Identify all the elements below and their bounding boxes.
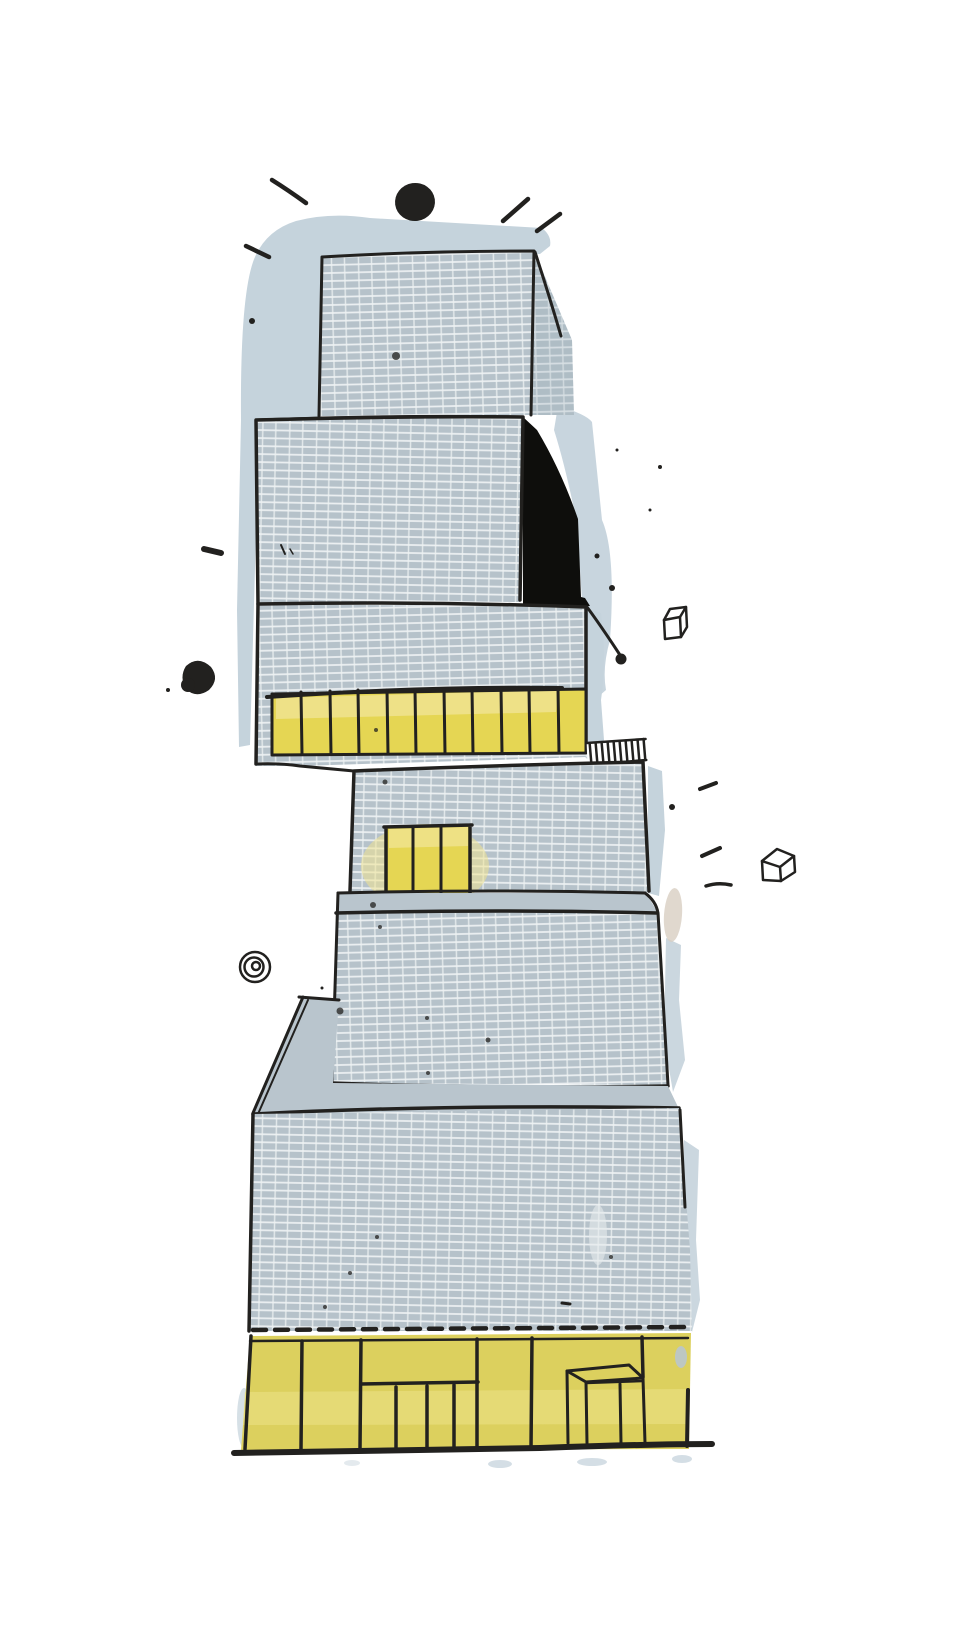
facade-eraser-smudge xyxy=(589,1205,607,1265)
box3-right-halo xyxy=(585,608,604,763)
3d-box-left-edge xyxy=(567,1371,568,1443)
door-lintel xyxy=(361,1382,478,1384)
ground-smudge-3 xyxy=(672,1455,692,1463)
box6-front-facade xyxy=(249,1108,692,1331)
rooftop-box-light-wash xyxy=(389,827,468,848)
small-tick xyxy=(562,1303,570,1304)
box5-front-top-edge xyxy=(336,911,657,913)
box2-front-facade xyxy=(256,417,523,604)
stacked-box-2 xyxy=(256,416,590,606)
left-dash xyxy=(204,549,221,553)
sketch-line-end-blob xyxy=(616,654,627,665)
stacked-box-1 xyxy=(319,251,574,416)
stacked-box-4 xyxy=(350,762,649,908)
stacked-box-5 xyxy=(332,891,668,1087)
box1-front-facade xyxy=(319,251,534,416)
storefront-right-edge xyxy=(687,1390,688,1446)
ink-blot-bump xyxy=(181,678,195,692)
building-sketch xyxy=(0,0,980,1634)
ground-smudge-2 xyxy=(577,1458,607,1466)
illustration-canvas xyxy=(0,0,980,1634)
ground-smudge-1 xyxy=(488,1460,512,1468)
3d-box-inner-edge xyxy=(620,1384,621,1443)
3d-box-front-left-edge xyxy=(586,1382,587,1443)
yellow-window-band xyxy=(267,688,586,755)
3d-box-right-edge xyxy=(643,1378,645,1443)
storefront-gray-patch xyxy=(675,1346,687,1368)
box5-front-facade xyxy=(332,913,668,1085)
stacked-box-6 xyxy=(249,1108,692,1331)
yellow-storefront-band xyxy=(241,1333,691,1450)
ground-smudge-4 xyxy=(344,1460,360,1466)
